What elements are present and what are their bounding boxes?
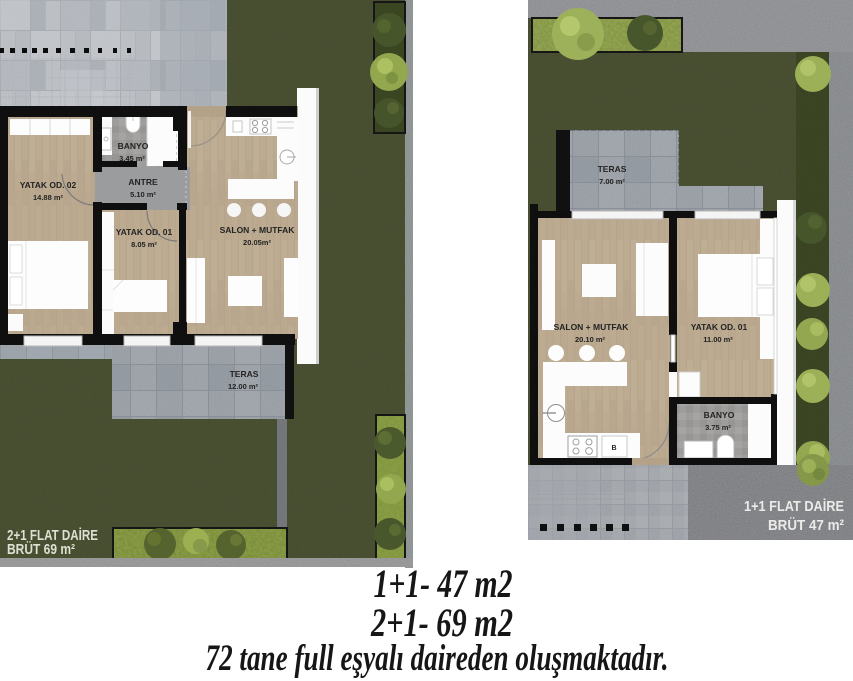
svg-text:BRÜT 47 m²: BRÜT 47 m²: [768, 517, 844, 534]
svg-text:7.00 m²: 7.00 m²: [599, 177, 625, 186]
svg-text:20.10 m²: 20.10 m²: [575, 335, 606, 344]
svg-text:8.05 m²: 8.05 m²: [131, 240, 157, 249]
svg-text:BANYO: BANYO: [704, 410, 735, 420]
svg-text:20.05m²: 20.05m²: [243, 238, 271, 247]
svg-text:1+1 FLAT DAİRE: 1+1 FLAT DAİRE: [744, 498, 844, 515]
svg-text:YATAK OD. 01: YATAK OD. 01: [116, 227, 173, 237]
svg-text:3.75 m²: 3.75 m²: [705, 423, 731, 432]
svg-text:SALON + MUTFAK: SALON + MUTFAK: [220, 225, 296, 235]
svg-text:TERAS: TERAS: [598, 164, 627, 174]
svg-text:5.10 m²: 5.10 m²: [130, 190, 156, 199]
svg-text:YATAK OD. 02: YATAK OD. 02: [20, 180, 77, 190]
svg-text:BANYO: BANYO: [118, 141, 149, 151]
svg-text:12.00 m²: 12.00 m²: [228, 382, 259, 391]
svg-text:BRÜT 69 m²: BRÜT 69 m²: [7, 541, 75, 558]
svg-text:14.88 m²: 14.88 m²: [33, 193, 64, 202]
svg-text:YATAK OD. 01: YATAK OD. 01: [691, 322, 748, 332]
svg-text:B: B: [611, 445, 616, 452]
svg-text:SALON + MUTFAK: SALON + MUTFAK: [554, 322, 630, 332]
svg-text:ANTRE: ANTRE: [128, 177, 158, 187]
svg-text:11.00 m²: 11.00 m²: [703, 335, 733, 344]
svg-text:TERAS: TERAS: [230, 369, 259, 379]
svg-text:72 tane full eşyalı daireden o: 72 tane full eşyalı daireden oluşmaktadı…: [206, 638, 669, 679]
